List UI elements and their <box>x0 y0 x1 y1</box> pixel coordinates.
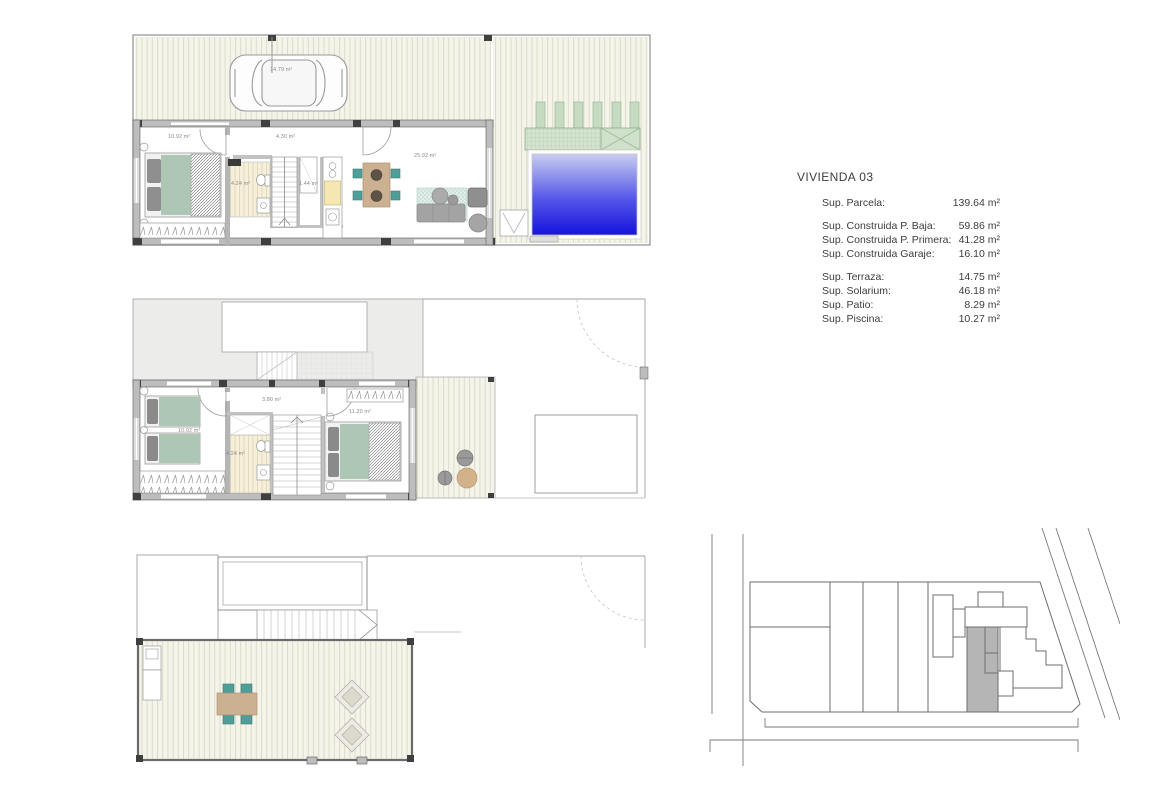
area-row: Sup. Construida P. Baja: 59.86 m² <box>822 219 1000 233</box>
floor-plan-sheet: 14.79 m² 10.92 m² 4.30 m² 4.24 m² 1.44 m… <box>0 0 1170 785</box>
stairs-icon <box>273 415 321 495</box>
solarium-plan <box>131 548 653 774</box>
terrace-deck <box>416 377 495 498</box>
area-label: Sup. Construida P. Baja: <box>822 219 936 233</box>
area-row: Sup. Construida P. Primera: 41.28 m² <box>822 233 1000 247</box>
area-row: Sup. Construida Garaje: 16.10 m² <box>822 247 1000 261</box>
area-summary: Sup. Parcela: 139.64 m² Sup. Construida … <box>822 196 1000 326</box>
room-area-label: 4.24 m² <box>226 450 245 456</box>
double-bed-icon <box>140 143 221 227</box>
wardrobe-icon <box>347 389 403 402</box>
site-plan <box>690 528 1120 778</box>
room-area-label: 11.20 m² <box>349 408 371 414</box>
ground-floor-plan: 14.79 m² 10.92 m² 4.30 m² 4.24 m² 1.44 m… <box>131 33 653 247</box>
area-row: Sup. Parcela: 139.64 m² <box>822 196 1000 210</box>
area-row: Sup. Piscina: 10.27 m² <box>822 312 1000 326</box>
area-label: Sup. Solarium: <box>822 284 891 298</box>
area-value: 14.75 m² <box>959 270 1000 284</box>
living-room-furniture <box>417 188 487 232</box>
room-area-label: 3.80 m² <box>262 396 281 402</box>
room-area-label: 4.30 m² <box>276 133 295 139</box>
dwelling-title: VIVIENDA 03 <box>797 170 873 184</box>
kitchenette <box>143 646 161 700</box>
solarium-deck <box>136 638 414 764</box>
area-label: Sup. Construida P. Primera: <box>822 233 951 247</box>
area-value: 59.86 m² <box>959 219 1000 233</box>
wardrobe-icon <box>140 223 225 238</box>
area-value: 139.64 m² <box>953 196 1000 210</box>
dining-table-icon <box>353 163 400 207</box>
area-row: Sup. Patio: 8.29 m² <box>822 298 1000 312</box>
stairs-icon <box>257 610 377 640</box>
area-value: 10.27 m² <box>959 312 1000 326</box>
area-label: Sup. Parcela: <box>822 196 885 210</box>
double-bed-icon <box>325 413 401 490</box>
car-icon <box>230 55 347 111</box>
area-label: Sup. Terraza: <box>822 270 884 284</box>
area-label: Sup. Piscina: <box>822 312 883 326</box>
area-row: Sup. Terraza: 14.75 m² <box>822 270 1000 284</box>
area-row: Sup. Solarium: 46.18 m² <box>822 284 1000 298</box>
room-area-label: 4.24 m² <box>231 180 250 186</box>
stair-bulkhead <box>218 557 367 610</box>
first-floor-plan: 10.92 m² 3.80 m² 4.24 m² 11.20 m² <box>131 293 653 507</box>
room-area-label: 25.92 m² <box>414 152 436 158</box>
bathroom-fixtures <box>228 159 270 217</box>
pool <box>528 150 641 239</box>
closet <box>300 157 317 193</box>
area-value: 16.10 m² <box>959 247 1000 261</box>
area-label: Sup. Patio: <box>822 298 873 312</box>
twin-beds-icon <box>140 387 200 464</box>
area-value: 41.28 m² <box>959 233 1000 247</box>
room-area-label: 10.92 m² <box>168 133 190 139</box>
room-area-label: 14.79 m² <box>270 66 292 72</box>
room-area-label: 1.44 m² <box>299 180 318 186</box>
area-value: 46.18 m² <box>959 284 1000 298</box>
room-area-label: 10.92 m² <box>178 427 200 433</box>
wardrobe-icon <box>140 471 225 493</box>
kitchen-counter <box>323 157 342 238</box>
area-value: 8.29 m² <box>964 298 1000 312</box>
area-label: Sup. Construida Garaje: <box>822 247 935 261</box>
roof-outline <box>137 555 645 648</box>
pool-void-outline <box>535 415 637 493</box>
stairs-icon <box>272 157 297 227</box>
